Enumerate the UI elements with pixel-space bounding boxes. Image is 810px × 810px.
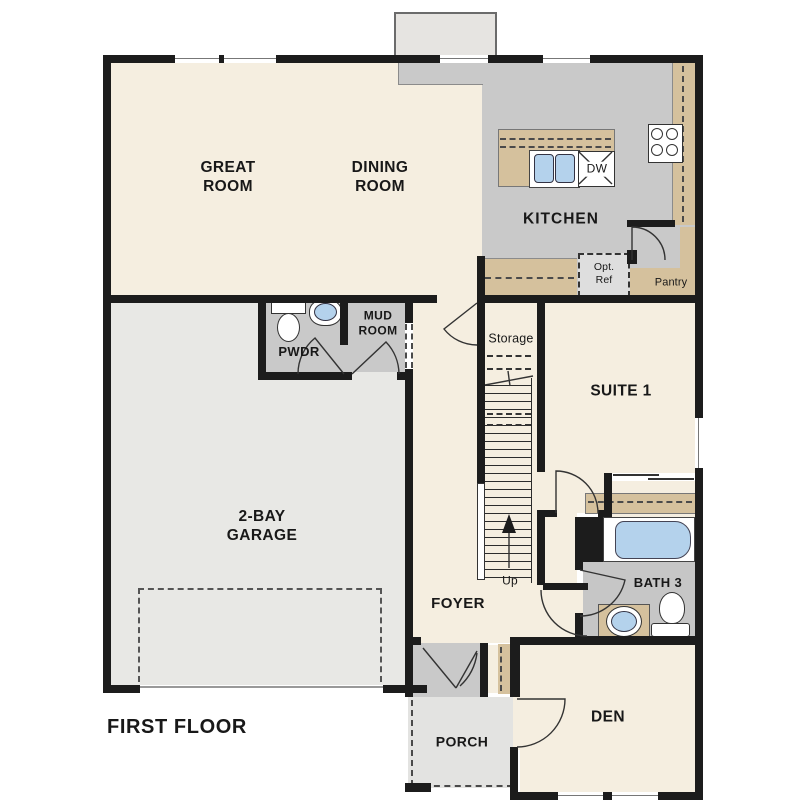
window <box>224 55 276 63</box>
wall-porch-stub <box>405 783 431 792</box>
bath3-toilet-tank-icon <box>651 623 690 637</box>
wall-bath-left-upper <box>575 560 583 570</box>
island-dashline-2 <box>500 146 611 148</box>
dining-room-label: DINING ROOM <box>352 159 409 197</box>
stair-dash-mid <box>487 413 531 426</box>
foyer-label: FOYER <box>431 595 485 613</box>
pantry-label: Pantry <box>655 276 687 289</box>
wall-suite-left <box>537 303 545 472</box>
wall-hall-bottom <box>543 583 588 590</box>
suite1-label: SUITE 1 <box>590 383 651 402</box>
rear-counter-dashline <box>485 277 574 279</box>
stair-rail <box>477 483 485 580</box>
wall-den-left-upper <box>510 637 520 697</box>
floor-title: FIRST FLOOR <box>107 716 247 739</box>
wall-suite-door-stub <box>537 510 557 517</box>
burner-icon <box>651 128 663 140</box>
wall-kitchen-bottom <box>477 295 703 303</box>
wall-pwdr-bottom <box>258 372 352 380</box>
wall-pantry-door-stub <box>627 250 637 264</box>
burner-icon <box>666 128 678 140</box>
wall-stairs-left <box>477 303 485 483</box>
porch-edge-left <box>411 700 413 786</box>
mud-opening-dash-a <box>405 324 407 368</box>
garage-label: 2-BAY GARAGE <box>227 508 297 546</box>
kitchen-label: KITCHEN <box>523 211 599 230</box>
storage-label: Storage <box>488 331 533 346</box>
wall-bath-bottom <box>575 636 703 644</box>
great-room-label: GREAT ROOM <box>200 159 255 197</box>
closet-slider-panel-2 <box>648 478 694 480</box>
bath3-sink-icon <box>611 611 637 632</box>
wall-den-left-lower <box>510 747 518 795</box>
stair-rail-line <box>531 378 532 583</box>
floor-plan: GREAT ROOM DINING ROOM KITCHEN DW Opt. R… <box>0 0 810 810</box>
window <box>543 55 590 63</box>
wall-den-bottom <box>510 792 703 800</box>
wall-hall-left <box>537 515 545 585</box>
wall-garage-bottom-left <box>103 685 140 693</box>
garage-door-opening <box>140 686 383 692</box>
bath3-toilet-bowl-icon <box>659 592 685 624</box>
window <box>175 55 219 63</box>
coat-closet-dashline <box>500 647 502 691</box>
wall-left <box>103 55 111 693</box>
pwdr-sink-icon <box>314 303 337 321</box>
window <box>440 55 488 63</box>
wall-greatroom-bottom <box>103 295 437 303</box>
pwdr-toilet-bowl-icon <box>277 313 300 342</box>
wall-coat-closet-left <box>480 643 488 697</box>
wall-pwdr-left <box>258 303 266 372</box>
mud-opening-dash-b <box>411 324 413 368</box>
opt-ref-label: Opt. Ref <box>594 261 614 287</box>
pantry-floor-side <box>680 227 695 268</box>
dishwasher-label: DW <box>586 162 609 177</box>
bath3-label: BATH 3 <box>634 575 682 591</box>
wall-tub-left-block <box>575 517 603 562</box>
stair-dash-upper <box>487 355 531 370</box>
porch-label: PORCH <box>436 733 489 750</box>
stair-treads <box>485 378 531 583</box>
tub-icon <box>615 521 691 559</box>
closet-slider-panel-1 <box>613 474 659 476</box>
wall-pwdr-divider <box>340 303 348 345</box>
great-dining-floor <box>111 63 482 303</box>
wall-entry-jut <box>405 637 421 645</box>
sink-basin-left-icon <box>534 154 554 183</box>
wall-closet-left <box>604 473 612 517</box>
pantry-walkway <box>630 227 680 268</box>
den-label: DEN <box>591 709 625 728</box>
window <box>695 418 703 468</box>
burner-icon <box>651 144 663 156</box>
burner-icon <box>666 144 678 156</box>
window <box>612 792 658 800</box>
mud-room-label: MUD ROOM <box>359 308 398 337</box>
wall-pantry-top <box>627 220 675 227</box>
pwdr-label: PWDR <box>278 344 319 360</box>
window <box>558 792 603 800</box>
garage-door-dashed-zone <box>138 588 382 682</box>
sink-basin-right-icon <box>555 154 575 183</box>
kitchen-floor-strip <box>398 63 483 85</box>
wall-counter-stub <box>477 256 485 298</box>
up-label: Up <box>502 574 518 589</box>
island-dashline-1 <box>500 138 611 140</box>
